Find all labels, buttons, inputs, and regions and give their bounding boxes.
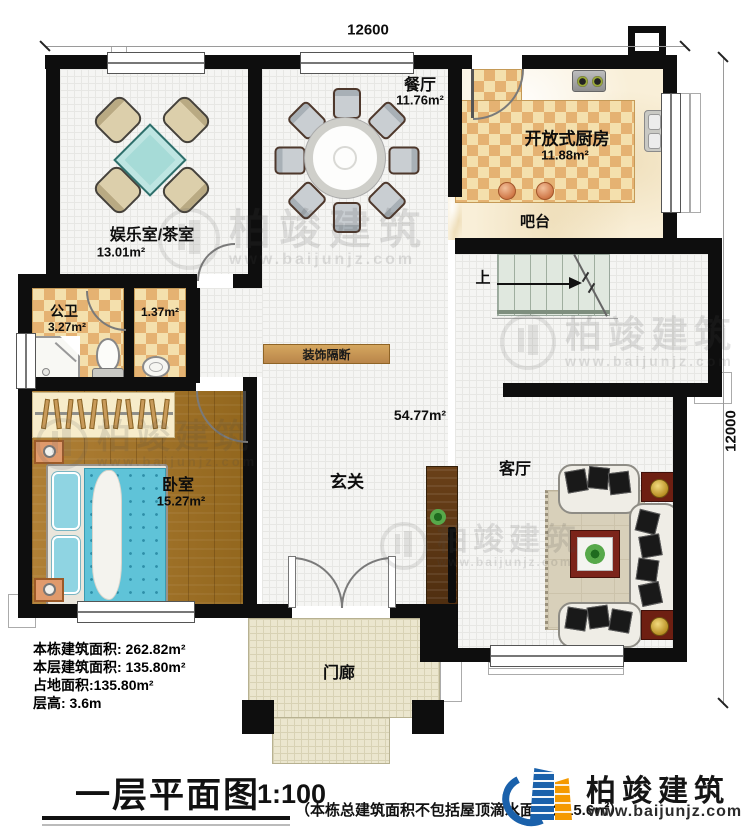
area-kitchen: 11.88m²	[541, 148, 589, 163]
door-leaf	[471, 69, 474, 118]
flue	[628, 26, 666, 58]
stat-building-total: 本栋建筑面积: 262.82m²	[33, 640, 185, 658]
shower-drain-icon	[42, 368, 50, 376]
shower-corner-cut	[60, 336, 80, 356]
title-underline-thin	[42, 824, 290, 826]
stair-up-arrow-line	[497, 283, 569, 285]
basin	[142, 356, 170, 378]
window	[77, 601, 195, 623]
side-table	[641, 472, 674, 502]
dining-chair	[275, 147, 306, 175]
door-leaf	[243, 391, 246, 441]
label-bathroom: 公卫	[50, 301, 78, 321]
sink-basin	[648, 133, 661, 149]
wall	[248, 55, 262, 288]
stove-burner-icon	[592, 76, 603, 87]
sofa-pillow	[564, 468, 589, 493]
label-entertainment: 娱乐室/茶室	[110, 221, 194, 245]
sofa-pillow	[638, 533, 663, 558]
dining-chair	[333, 88, 361, 119]
dimension-line-right	[723, 57, 724, 705]
bar-stool	[498, 182, 516, 200]
sofa-pillow	[587, 605, 611, 630]
wall	[18, 274, 197, 288]
floor-porch-step	[272, 718, 390, 764]
page-title: 一层平面图	[75, 767, 260, 818]
logo-swoosh-icon	[495, 767, 564, 834]
label-bedroom: 卧室	[162, 471, 194, 495]
tv-cabinet	[426, 466, 458, 608]
bed-pillow	[52, 472, 80, 530]
bed	[46, 464, 168, 606]
tv-icon	[448, 527, 456, 603]
partition-label: 装饰隔断	[302, 346, 350, 363]
window	[490, 645, 624, 667]
bar-stool	[536, 182, 554, 200]
sofa-pillow	[608, 608, 633, 633]
dimension-top-label: 12600	[347, 22, 389, 39]
sink-basin	[648, 114, 661, 130]
wall	[18, 274, 32, 618]
porch-column	[412, 700, 444, 734]
area-bedroom: 15.27m²	[157, 494, 205, 509]
window	[661, 93, 681, 213]
stair-landing-line	[492, 318, 618, 319]
title-underline	[42, 816, 290, 820]
stat-footprint: 占地面积:135.80m²	[33, 676, 185, 694]
porch-column	[242, 700, 274, 734]
wall	[708, 238, 722, 397]
dimension-right-label: 12000	[723, 410, 740, 452]
stats-block: 本栋建筑面积: 262.82m² 本层建筑面积: 135.80m² 占地面积:1…	[33, 640, 185, 712]
label-dining: 餐厅	[404, 71, 436, 95]
window	[107, 52, 205, 74]
plant-icon	[585, 544, 605, 564]
label-foyer: 玄关	[330, 468, 364, 493]
sofa-pillow	[587, 466, 610, 490]
area-utility: 1.37m²	[141, 305, 179, 319]
area-bathroom: 3.27m²	[48, 320, 86, 334]
brand-url: www.baijunjz.com	[588, 803, 742, 821]
floor-stair-side	[673, 254, 708, 383]
title-scale: 1:100	[257, 779, 326, 810]
window-sill	[679, 93, 701, 213]
floor-corridor	[200, 288, 262, 377]
stat-floor-area: 本层建筑面积: 135.80m²	[33, 658, 185, 676]
plant-icon	[430, 509, 446, 525]
stove-burner-icon	[577, 76, 588, 87]
nightstand	[34, 440, 64, 464]
floor-bar-opening	[448, 197, 462, 240]
toilet-bowl	[96, 338, 120, 372]
label-kitchen: 开放式厨房	[525, 125, 610, 150]
sofa-pillow	[638, 581, 663, 607]
stair-rail	[497, 310, 610, 314]
decorative-partition: 装饰隔断	[263, 344, 390, 364]
nightstand	[34, 578, 64, 602]
stove	[572, 70, 606, 92]
brand-logo: 柏竣建筑 www.baijunjz.com	[502, 766, 748, 832]
logo-building-orange-icon	[555, 778, 572, 820]
stair-up-arrowhead-icon	[569, 277, 582, 289]
basin-inner	[149, 362, 163, 372]
sofa-pillow	[636, 558, 660, 583]
wall	[186, 288, 200, 383]
entry-door-leaf	[388, 556, 396, 608]
label-bar: 吧台	[520, 211, 550, 232]
nightstand-lamp-icon	[43, 445, 56, 458]
area-hall: 54.77m²	[394, 407, 446, 423]
wall	[448, 55, 462, 197]
wall	[503, 383, 722, 397]
wall	[455, 238, 722, 254]
label-living: 客厅	[499, 455, 531, 479]
window	[300, 52, 414, 74]
floor-plan-canvas: 装饰隔断	[0, 0, 750, 839]
window	[16, 333, 36, 389]
sofa-pillow	[608, 471, 632, 495]
dining-chair	[333, 202, 361, 233]
wall	[18, 377, 196, 391]
area-entertainment: 13.01m²	[97, 245, 145, 260]
bed-blanket	[92, 470, 122, 600]
sofa-pillow	[564, 606, 588, 631]
entry-door-leaf	[288, 556, 296, 608]
dining-table-lazy-susan	[333, 146, 357, 170]
wardrobe	[32, 392, 175, 438]
side-table	[641, 610, 674, 640]
wall	[412, 55, 472, 69]
dimension-line-top	[45, 46, 685, 47]
dining-chair	[389, 147, 420, 175]
label-stairs-up: 上	[475, 267, 490, 288]
stat-height: 层高: 3.6m	[33, 694, 185, 712]
nightstand-lamp-icon	[43, 583, 56, 596]
wall	[673, 383, 687, 662]
label-porch: 门廊	[323, 659, 355, 683]
wall	[46, 55, 60, 281]
coffee-table	[570, 530, 620, 578]
area-dining: 11.76m²	[396, 93, 444, 108]
